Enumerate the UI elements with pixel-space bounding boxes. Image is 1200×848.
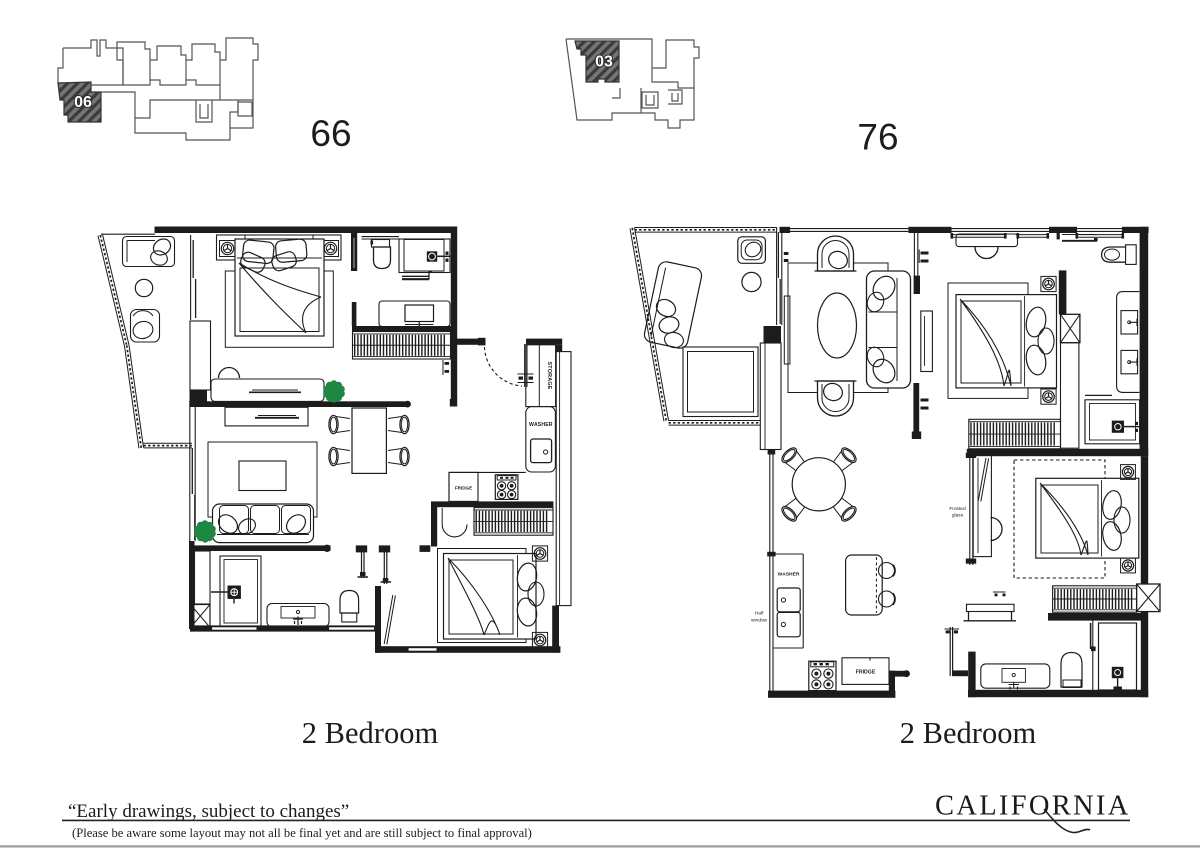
svg-text:glass: glass xyxy=(952,513,964,519)
svg-text:“Early drawings, subject to ch: “Early drawings, subject to changes” xyxy=(68,801,349,822)
svg-text:2 Bedroom: 2 Bedroom xyxy=(302,716,439,750)
svg-text:66: 66 xyxy=(310,113,351,154)
svg-text:FRIDGE: FRIDGE xyxy=(455,486,472,491)
svg-text:76: 76 xyxy=(857,117,898,158)
svg-text:Frosted: Frosted xyxy=(949,506,966,512)
svg-text:2 Bedroom: 2 Bedroom xyxy=(900,716,1037,750)
svg-text:Half: Half xyxy=(755,611,764,617)
svg-text:03: 03 xyxy=(595,54,613,71)
svg-text:WASHER: WASHER xyxy=(778,572,800,578)
svg-text:window: window xyxy=(751,618,768,624)
svg-text:STORAGE: STORAGE xyxy=(546,361,552,389)
svg-text:(Please be aware some layout m: (Please be aware some layout may not all… xyxy=(72,826,532,840)
svg-text:FRIDGE: FRIDGE xyxy=(856,670,876,676)
svg-text:CALIFORNIA: CALIFORNIA xyxy=(935,791,1131,822)
svg-text:WASHER: WASHER xyxy=(529,422,553,428)
svg-text:06: 06 xyxy=(74,94,92,111)
